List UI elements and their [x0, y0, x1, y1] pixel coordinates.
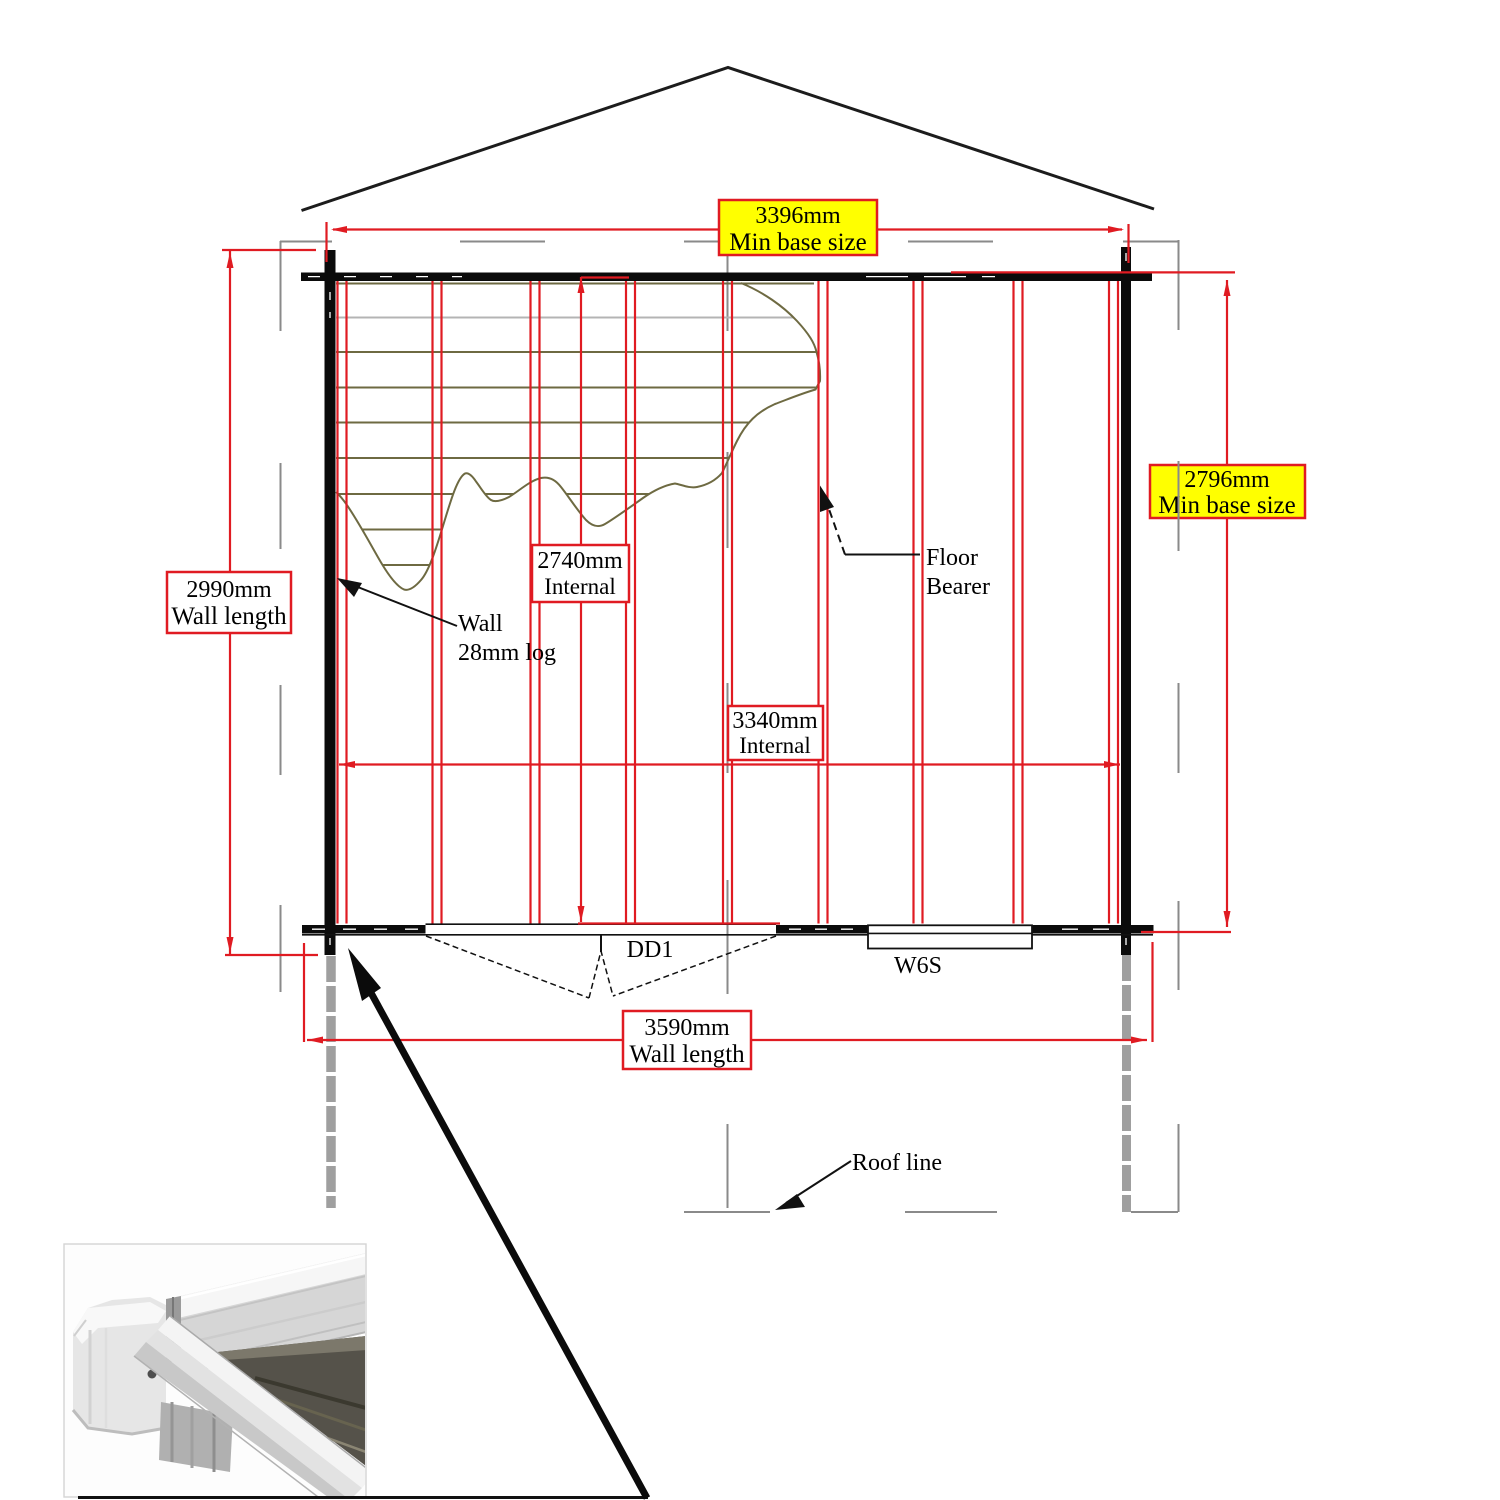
- svg-text:Wall length: Wall length: [171, 603, 287, 630]
- svg-text:Internal: Internal: [739, 733, 811, 758]
- svg-text:Wall: Wall: [458, 611, 503, 637]
- svg-text:Wall length: Wall length: [629, 1041, 745, 1068]
- svg-text:3396mm: 3396mm: [755, 203, 841, 229]
- svg-text:2796mm: 2796mm: [1184, 467, 1270, 493]
- svg-text:28mm log: 28mm log: [458, 640, 556, 666]
- svg-text:Bearer: Bearer: [926, 574, 990, 600]
- svg-text:3590mm: 3590mm: [644, 1015, 730, 1041]
- svg-text:W6S: W6S: [894, 953, 942, 979]
- svg-text:2740mm: 2740mm: [537, 548, 623, 574]
- svg-text:DD1: DD1: [627, 937, 674, 963]
- svg-text:2990mm: 2990mm: [186, 577, 272, 603]
- svg-text:Roof line: Roof line: [852, 1150, 942, 1176]
- svg-text:3340mm: 3340mm: [732, 708, 818, 734]
- svg-text:Internal: Internal: [544, 574, 616, 599]
- svg-text:Min base size: Min base size: [729, 229, 866, 256]
- svg-text:Floor: Floor: [926, 545, 978, 571]
